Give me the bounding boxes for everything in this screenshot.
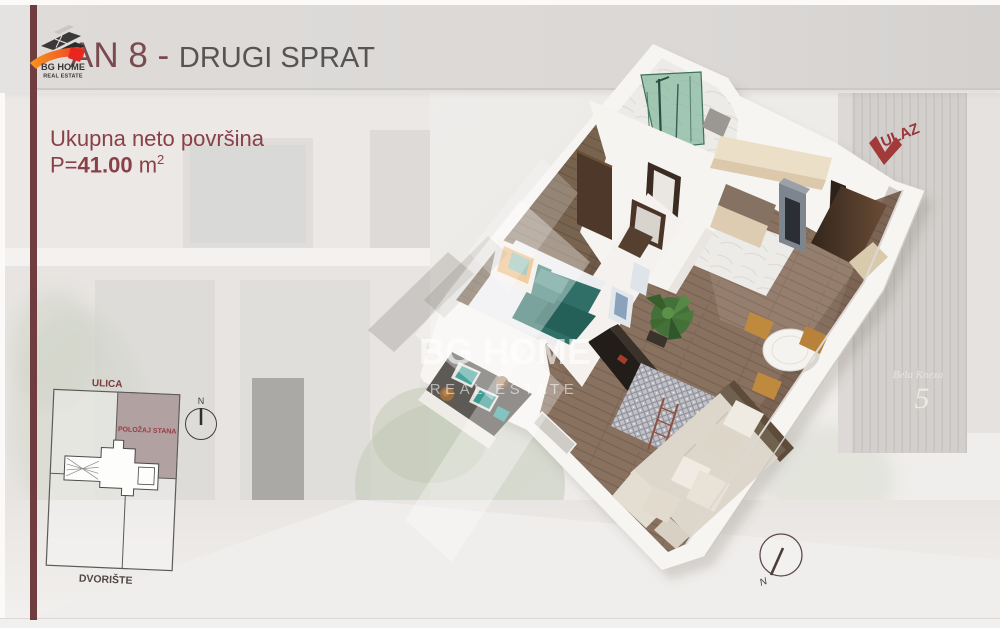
svg-text:N: N bbox=[198, 396, 205, 406]
svg-text:BG HOME: BG HOME bbox=[419, 331, 591, 372]
svg-text:BG HOME: BG HOME bbox=[41, 62, 85, 72]
svg-text:DVORIŠTE: DVORIŠTE bbox=[79, 572, 133, 587]
svg-text:N: N bbox=[758, 576, 769, 589]
svg-text:ULICA: ULICA bbox=[92, 378, 123, 390]
svg-text:REAL ESTATE: REAL ESTATE bbox=[430, 381, 578, 398]
svg-text:REAL ESTATE: REAL ESTATE bbox=[43, 74, 83, 80]
